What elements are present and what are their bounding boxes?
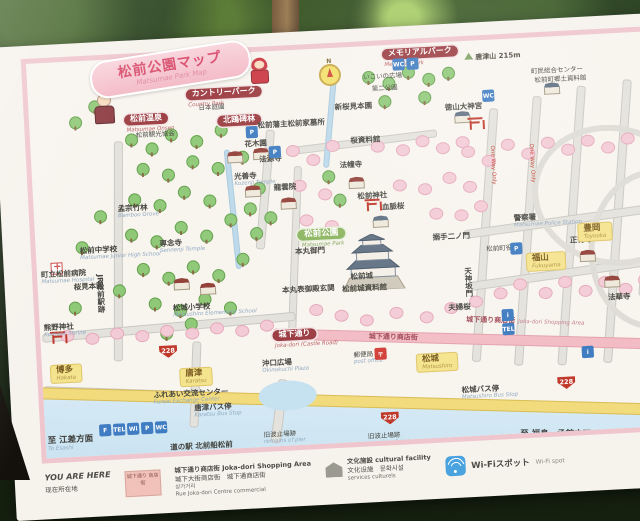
service-icon-P: P [406, 57, 419, 70]
label-okinokuchi-plaza: 沖口広場Okinokuchi Plaza [262, 358, 310, 375]
label-kumano-shrine: 熊野神社Kumano Shrine [44, 322, 87, 338]
cherry-blossom-icon [493, 287, 508, 300]
label-meoto-zakura: 夫婦桜 [448, 303, 471, 312]
cherry-blossom-icon [135, 330, 150, 343]
cherry-blossom-icon [286, 145, 301, 158]
cherry-blossom-icon [419, 311, 434, 324]
service-icon-WC: WC [392, 58, 405, 71]
you-are-here: YOU ARE HERE 现在所在地 [44, 470, 111, 494]
cherry-blossom-icon [306, 154, 321, 167]
cherry-blossom-icon [396, 144, 411, 157]
service-icon-i: i [501, 309, 514, 322]
road [224, 149, 243, 269]
cherry-blossom-icon [210, 322, 225, 335]
service-icon-P: P [246, 126, 259, 139]
tree-icon [212, 269, 226, 283]
label-old-pier-1: 旧波止場跡remains of pier [264, 430, 306, 445]
label-hokkeji: 法華寺 [608, 293, 631, 302]
mascot-girl [250, 57, 269, 84]
cherry-blossom-icon [235, 325, 250, 338]
label-country-park: カントリーパークCountry Park [186, 86, 262, 101]
cherry-blossom-icon [418, 183, 433, 196]
label-oneway-1: One Way Only [489, 145, 497, 184]
label-onsen-badge: 松前温泉Matsumae Onsen [124, 113, 169, 126]
cherry-blossom-icon [309, 304, 324, 317]
cherry-blossom-icon [501, 138, 516, 151]
cherry-blossom-icon [415, 135, 430, 148]
cherry-blossom-icon [318, 188, 333, 201]
cherry-blossom-icon [334, 309, 349, 322]
label-matsumae-shrine: 松前神社 [357, 191, 387, 201]
cherry-blossom-icon [260, 319, 275, 332]
cherry-blossom-icon [185, 327, 200, 340]
shopping-street-legend: 城下通り商店街 Joka-dori Shopping Area 城下大街商店街 … [174, 460, 312, 499]
label-matsushiro-bus: 松城バス停Matsushiro Bus Stop [461, 384, 518, 401]
label-hakata: 博多Hakata [50, 363, 83, 384]
cherry-blossom-icon [299, 214, 314, 227]
label-joka-dori-badge: 城下通りJoka-dori (Castle Road) [272, 328, 317, 341]
tree-icon [94, 210, 108, 224]
label-mt-karatsu: 唐津山 215m [464, 50, 521, 63]
cherry-blossom-icon [393, 179, 408, 192]
temple-icon [200, 282, 217, 295]
cherry-blossom-icon [454, 209, 469, 222]
route-228-badge: 228 [557, 374, 576, 390]
temple-icon [173, 278, 190, 291]
tree-icon [174, 221, 188, 235]
tree-icon [69, 116, 83, 130]
label-ikoi-hiroba: いこいの広場 [363, 72, 402, 81]
cherry-blossom-icon [325, 140, 340, 153]
label-karamete-ninomon: 搦手二ノ門 [432, 232, 470, 242]
tree-icon [422, 73, 436, 87]
cherry-blossom-icon [538, 287, 553, 300]
service-icon-F: F [99, 424, 112, 437]
service-icon-TEL: TEL [113, 423, 126, 436]
label-old-pier-2: 旧波止場跡remains of pier [368, 431, 410, 446]
service-icon-WC: WC [155, 421, 168, 434]
tree-icon [264, 211, 278, 225]
label-shin-sakura-mihonen: 新桜見本園 [334, 102, 372, 112]
temple-icon [579, 249, 596, 262]
cherry-blossom-icon [85, 332, 100, 345]
temple-icon [348, 176, 365, 189]
label-karatsu-bus: 唐津バス停Karatsu Bus Stop [194, 402, 242, 419]
label-shopping-street-1: 城下通り商店街 [369, 333, 418, 342]
label-daini-koen: 第二公園 [372, 84, 398, 92]
label-matsushiro: 松城Matsushiro [416, 352, 459, 374]
tree-icon [145, 142, 159, 156]
cherry-blossom-icon [360, 314, 375, 327]
building-icon [544, 82, 561, 95]
label-karatsu: 唐津Karatsu [179, 367, 213, 388]
tree-icon [148, 297, 162, 311]
service-icon-Wi: Wi [127, 422, 140, 435]
label-junior-high: 松前中学校Matsumae Junior High School [80, 243, 161, 261]
tree-icon [137, 263, 151, 277]
label-to-esashi: 至 江差方面To Esashi [48, 435, 94, 453]
route-228-badge: 228 [159, 342, 178, 358]
label-hodoji: 法幢寺 [339, 160, 362, 169]
compass-icon: N [318, 63, 341, 86]
service-icon-WC: WC [482, 89, 495, 102]
wifi-legend: Wi-Fiスポット Wi-Fi spot [445, 450, 566, 476]
tree-icon [113, 284, 127, 298]
tree-icon [162, 168, 176, 182]
label-sennenji: 専念寺Sennenji Temple [159, 238, 205, 255]
label-castle-label: 松前城 [350, 272, 373, 281]
label-moso-chikurin: 孟宗竹林Bamboo Grove [117, 203, 159, 219]
label-fukuyama: 福山Fukuyama [526, 251, 567, 272]
service-icon-P: P [141, 422, 154, 435]
label-kozenji: 光善寺Kozenji Temple [234, 171, 276, 187]
tree-icon [178, 185, 192, 199]
label-hokuo-hirin: 北鴎碑林 [217, 114, 262, 127]
service-icon-P: P [269, 146, 282, 159]
service-icon-P: P [510, 242, 523, 255]
cherry-blossom-icon [461, 146, 476, 159]
label-tokuyama-daijingu: 徳山大神宮 [445, 102, 483, 112]
map-board: N 松前温泉Matsumae Onsen松前観光協会日本庭園カントリーパークCo… [0, 13, 640, 521]
cherry-blossom-icon [442, 172, 457, 185]
torii-icon [367, 201, 382, 211]
tree-icon [203, 194, 217, 208]
label-honmaru-gomon: 本丸御門 [295, 246, 325, 256]
label-omote-goten: 本丸表御殿玄関 [282, 284, 335, 295]
tree-icon [418, 91, 432, 105]
label-jr-station-site: JR松前駅跡 [95, 274, 105, 313]
temple-icon [227, 151, 244, 164]
torii-icon [470, 120, 485, 130]
temple-icon [604, 275, 621, 288]
tree-icon [186, 260, 200, 274]
tree-icon [442, 66, 456, 80]
tree-icon [333, 193, 347, 207]
temple-icon [280, 197, 297, 210]
service-icon-〒: 〒 [374, 347, 387, 360]
tree-icon [236, 252, 250, 266]
label-kyodo-museum: 松前町郷土資料館 [534, 75, 586, 85]
tree-icon [244, 202, 258, 216]
tree-icon [322, 170, 336, 184]
shopping-street-swatch: 城下通り 商店街 [124, 469, 161, 497]
label-michinoeki: 道の駅 北前船松前Michi-no-Eki Kitamaebune-Matsum… [170, 439, 273, 459]
cherry-blossom-icon [578, 285, 593, 298]
label-castle-museum: 松前城資料館 [342, 283, 387, 294]
label-kechimyaku-zakura: 血脈桜 [382, 202, 405, 211]
service-icon-i: i [581, 346, 594, 359]
label-hanshu-bosho: 松前藩主松前家墓所 [257, 118, 325, 130]
photo-scene: N 松前温泉Matsumae Onsen松前観光協会日本庭園カントリーパークCo… [0, 0, 640, 480]
label-ryuunin: 龍雲院 [274, 183, 297, 192]
cherry-blossom-icon [389, 306, 404, 319]
cherry-blossom-icon [429, 207, 444, 220]
tree-icon [68, 301, 82, 315]
building-icon [372, 215, 389, 228]
tree-icon [190, 135, 204, 149]
label-toyooka: 豊岡Toyooka [577, 221, 613, 242]
service-icon-TEL: TEL [502, 323, 515, 336]
wifi-icon [445, 455, 466, 476]
tree-icon [378, 95, 392, 109]
tree-icon [125, 228, 139, 242]
label-tenjinzaka-mon: 天神坂門 [463, 267, 473, 297]
tree-icon [211, 162, 225, 176]
cultural-facility-icon [325, 462, 343, 478]
tree-icon [186, 155, 200, 169]
label-kabokuen: 花木園 [244, 139, 267, 148]
tree-icon [136, 163, 150, 177]
label-sakura-shiryokan: 桜資料館 [350, 135, 380, 145]
cherry-blossom-icon [463, 180, 478, 193]
cultural-facility-legend: 文化施設 cultural facility 文化设施 문화시설 service… [324, 447, 431, 483]
cherry-blossom-icon [436, 142, 451, 155]
